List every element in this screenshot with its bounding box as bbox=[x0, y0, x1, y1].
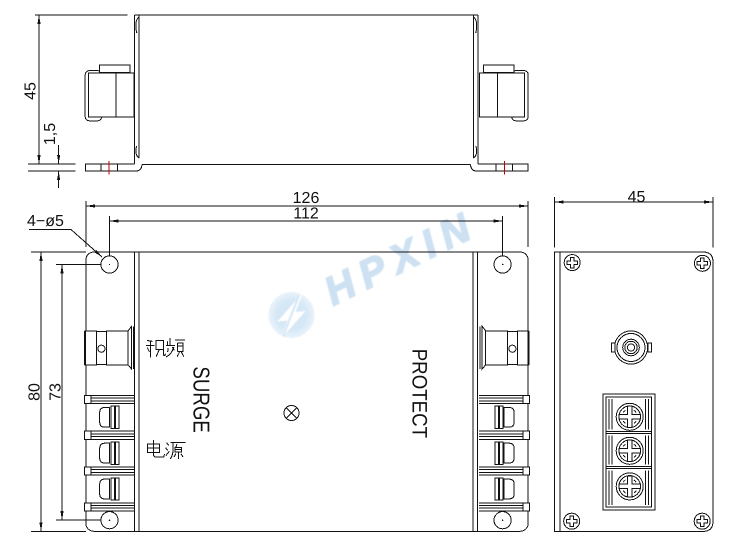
svg-text:126: 126 bbox=[293, 190, 320, 207]
svg-text:45: 45 bbox=[23, 82, 40, 100]
svg-text:73: 73 bbox=[48, 383, 65, 401]
svg-text:PROTECT: PROTECT bbox=[408, 349, 431, 439]
svg-text:1,5: 1,5 bbox=[42, 123, 59, 145]
svg-text:4−ø5: 4−ø5 bbox=[27, 213, 64, 230]
svg-text:112: 112 bbox=[293, 206, 319, 223]
svg-text:80: 80 bbox=[27, 383, 44, 401]
svg-text:45: 45 bbox=[628, 189, 646, 206]
svg-text:SURGE: SURGE bbox=[188, 366, 214, 433]
